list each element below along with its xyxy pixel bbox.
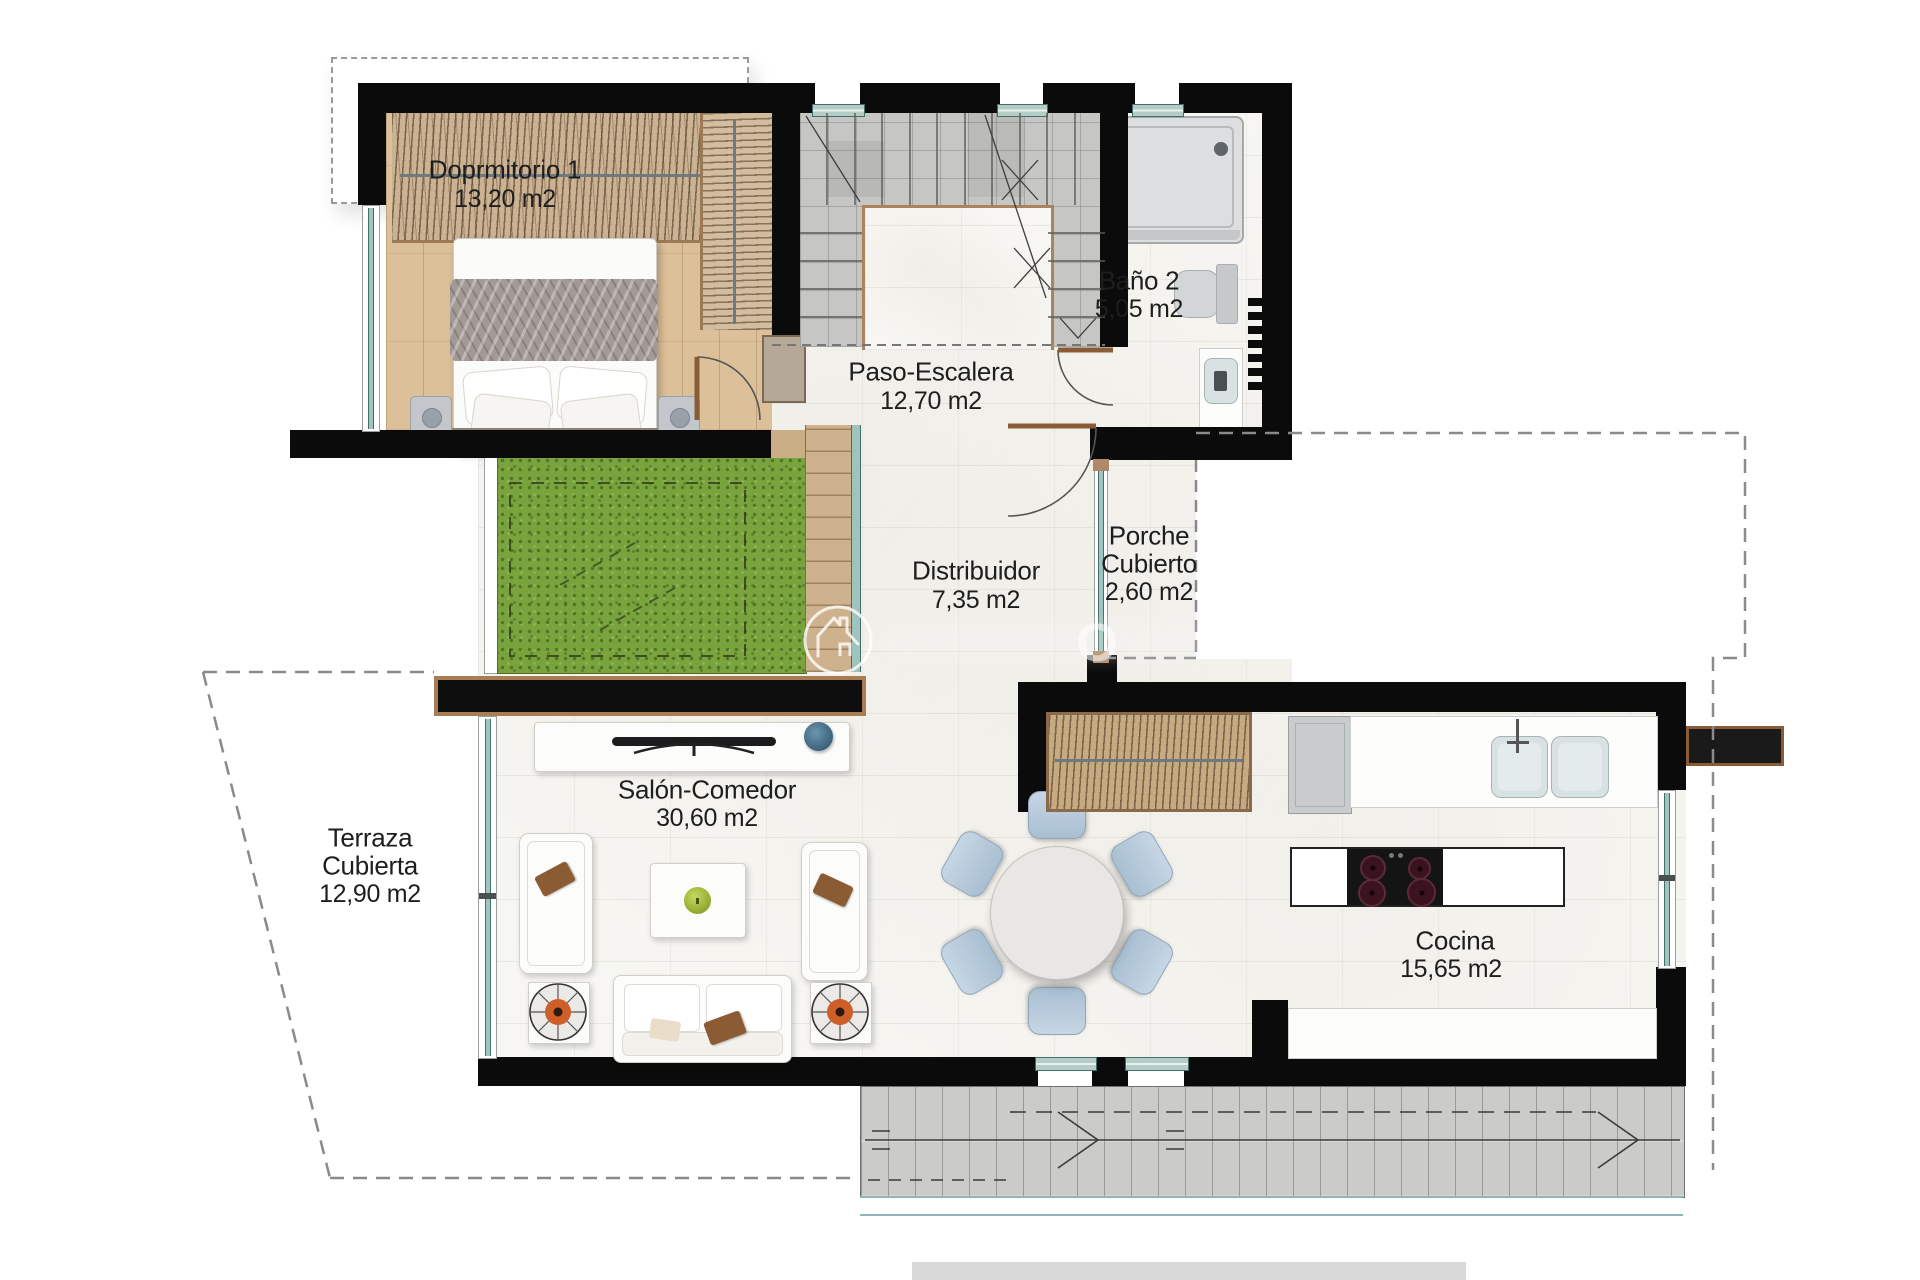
wall-kitchen-right-upper bbox=[1656, 682, 1686, 790]
sink-basin bbox=[1558, 743, 1602, 791]
bedroom-wardrobe-side bbox=[700, 113, 775, 330]
faucet-bar-icon bbox=[1507, 741, 1529, 744]
window-top-3-sill bbox=[1132, 104, 1184, 117]
kitchen-sink-2 bbox=[1551, 736, 1609, 798]
wall-tv bbox=[434, 676, 866, 716]
floor-plan-canvas: O Doprmitorio 1 13,20 m2 Paso-Escalera 1… bbox=[0, 0, 1920, 1280]
kitchen-sink-1 bbox=[1491, 736, 1548, 798]
room-label-distribuidor-area: 7,35 m2 bbox=[932, 587, 1020, 613]
wardrobe-side-rail bbox=[733, 120, 736, 324]
pouf-mat-right bbox=[810, 982, 872, 1044]
watermark-letter: O bbox=[1076, 612, 1118, 674]
burner-icon bbox=[1408, 857, 1431, 880]
kitchen-counter-bottom bbox=[1288, 1008, 1657, 1059]
exterior-beam bbox=[1686, 726, 1784, 766]
room-label-porche-line1: Porche bbox=[1109, 522, 1190, 549]
bath-sink bbox=[1204, 358, 1238, 404]
wall-tooth bbox=[1248, 298, 1262, 306]
wall-tooth bbox=[1248, 368, 1262, 376]
room-label-distribuidor-name: Distribuidor bbox=[912, 557, 1040, 584]
bed bbox=[453, 238, 657, 452]
apple-stem bbox=[696, 898, 699, 904]
shower-tray-inner bbox=[1120, 126, 1234, 228]
dining-chair bbox=[1028, 987, 1086, 1035]
toilet-tank bbox=[1216, 264, 1238, 324]
room-label-salon-name: Salón-Comedor bbox=[618, 776, 796, 803]
window-bottom-2-sill bbox=[1125, 1057, 1189, 1071]
cooktop-knob-icon bbox=[1389, 853, 1394, 858]
wall-tooth bbox=[1248, 312, 1262, 320]
cooktop bbox=[1347, 849, 1443, 905]
porch-glass-post-top bbox=[1093, 459, 1109, 471]
room-label-terraza-area: 12,90 m2 bbox=[319, 881, 421, 907]
window-top-1-sill bbox=[812, 104, 865, 117]
sofa bbox=[613, 975, 792, 1063]
wall-tooth bbox=[1248, 340, 1262, 348]
room-label-porche-area: 2,60 m2 bbox=[1105, 579, 1193, 605]
bottom-gray-bar bbox=[912, 1262, 1466, 1280]
tv-console bbox=[534, 722, 850, 772]
coffee-table bbox=[650, 863, 746, 938]
vase-blue bbox=[804, 722, 833, 751]
room-label-cocina-name: Cocina bbox=[1415, 927, 1494, 954]
shower-tray bbox=[1110, 116, 1244, 244]
wall-kitchen-separator bbox=[1252, 1000, 1288, 1086]
room-label-salon-area: 30,60 m2 bbox=[656, 805, 758, 831]
wall-tooth bbox=[1248, 326, 1262, 334]
garden-wood-deck bbox=[805, 425, 852, 672]
wall-kitchen-top bbox=[1018, 682, 1686, 712]
apple-green bbox=[684, 887, 711, 914]
armchair-right bbox=[801, 842, 868, 981]
watermark-text-streak bbox=[880, 620, 1440, 662]
salon-left-glass-wall bbox=[478, 716, 497, 1059]
armchair-cushion bbox=[809, 850, 860, 973]
bath-faucet-icon bbox=[1214, 371, 1227, 391]
armchair-left bbox=[519, 833, 593, 974]
shower-tray-edge bbox=[1114, 230, 1240, 240]
burner-icon bbox=[1360, 855, 1386, 881]
burner-icon bbox=[1407, 878, 1436, 907]
kitchen-pantry-closet bbox=[1046, 712, 1252, 812]
room-label-cocina-area: 15,65 m2 bbox=[1400, 956, 1502, 982]
room-label-bano2-area: 5,05 m2 bbox=[1095, 296, 1183, 322]
wall-bedroom-bottom bbox=[290, 430, 771, 458]
deck-edge-band bbox=[860, 1196, 1683, 1216]
room-label-terraza-line1: Terraza bbox=[328, 824, 413, 851]
tv bbox=[612, 737, 776, 746]
armchair-cushion bbox=[527, 841, 585, 966]
wall-bath-bottom bbox=[1090, 427, 1292, 460]
kitchen-right-window bbox=[1658, 790, 1676, 969]
room-label-bano2-name: Baño 2 bbox=[1099, 267, 1180, 294]
garden-wood-corner bbox=[771, 430, 805, 458]
wall-tooth bbox=[1248, 382, 1262, 390]
exterior-deck-steps bbox=[860, 1086, 1685, 1198]
stair-dark-tile bbox=[828, 141, 884, 197]
room-label-dormitorio1-name: Doprmitorio 1 bbox=[429, 156, 581, 183]
glass-mullion bbox=[479, 893, 496, 899]
wall-bath-right bbox=[1262, 83, 1292, 460]
room-label-paso-area: 12,70 m2 bbox=[880, 388, 982, 414]
lamp-icon bbox=[670, 408, 690, 428]
garden-glass-wall bbox=[851, 425, 861, 672]
pouf-mat-left bbox=[528, 982, 590, 1044]
fridge-inner bbox=[1295, 723, 1345, 807]
bed-throw-blanket bbox=[450, 279, 658, 361]
wall-tooth bbox=[1248, 354, 1262, 362]
room-label-terraza-line2: Cubierta bbox=[322, 852, 418, 879]
glass-mullion bbox=[1659, 875, 1675, 881]
room-label-dormitorio1-area: 13,20 m2 bbox=[454, 186, 556, 212]
room-label-porche-line2: Cubierto bbox=[1101, 550, 1197, 577]
window-bottom-1-sill bbox=[1035, 1057, 1097, 1071]
stair-void-open-below bbox=[862, 205, 1054, 350]
window-top-2-sill bbox=[997, 104, 1048, 117]
shower-drain-icon bbox=[1214, 142, 1228, 156]
cooktop-knob-icon bbox=[1398, 853, 1403, 858]
room-label-paso-name: Paso-Escalera bbox=[848, 358, 1013, 385]
pillow-beige bbox=[649, 1018, 681, 1042]
dining-table bbox=[990, 846, 1124, 980]
bedroom-left-window bbox=[362, 205, 380, 432]
garden-grass bbox=[497, 455, 807, 674]
faucet-icon bbox=[1516, 719, 1519, 753]
lamp-icon bbox=[422, 408, 442, 428]
wall-bedroom-right bbox=[772, 113, 800, 335]
wall-left-bedroom bbox=[358, 83, 386, 205]
sofa-back bbox=[622, 1032, 783, 1056]
burner-icon bbox=[1358, 879, 1386, 907]
stair-dark-tile bbox=[968, 113, 1024, 197]
fridge bbox=[1288, 716, 1352, 814]
sink-basin bbox=[1498, 743, 1541, 791]
pantry-rail bbox=[1055, 759, 1243, 762]
